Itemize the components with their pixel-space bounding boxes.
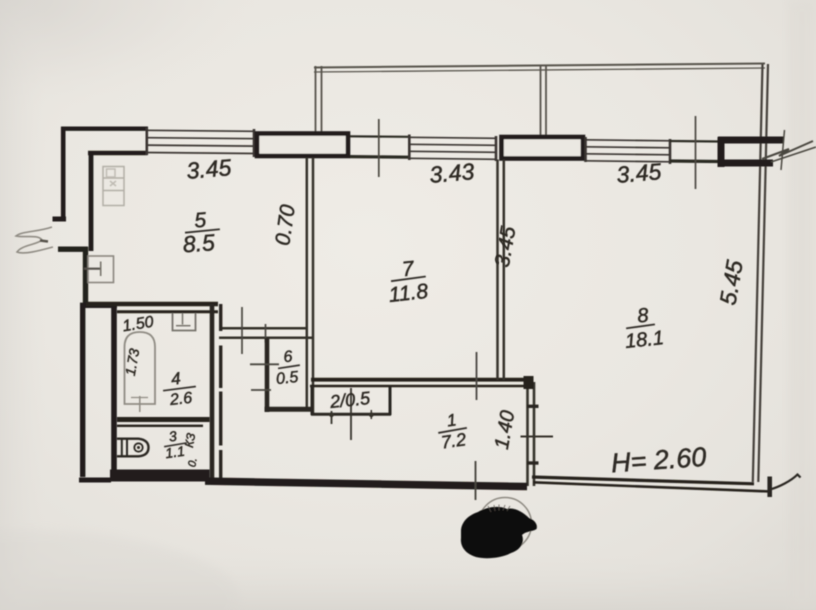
svg-text:18.1: 18.1 bbox=[624, 327, 665, 353]
svg-text:6: 6 bbox=[283, 348, 294, 366]
svg-text:8: 8 bbox=[636, 305, 649, 328]
svg-text:0.5: 0.5 bbox=[275, 369, 299, 388]
svg-text:11.8: 11.8 bbox=[388, 280, 430, 307]
svg-text:2.6: 2.6 bbox=[168, 390, 193, 409]
svg-text:3.45: 3.45 bbox=[615, 158, 662, 188]
svg-text:7.2: 7.2 bbox=[440, 429, 468, 452]
svg-text:8.5: 8.5 bbox=[182, 229, 216, 257]
svg-text:3.43: 3.43 bbox=[428, 158, 475, 188]
svg-text:4: 4 bbox=[170, 369, 181, 389]
svg-text:3.45: 3.45 bbox=[185, 154, 232, 184]
